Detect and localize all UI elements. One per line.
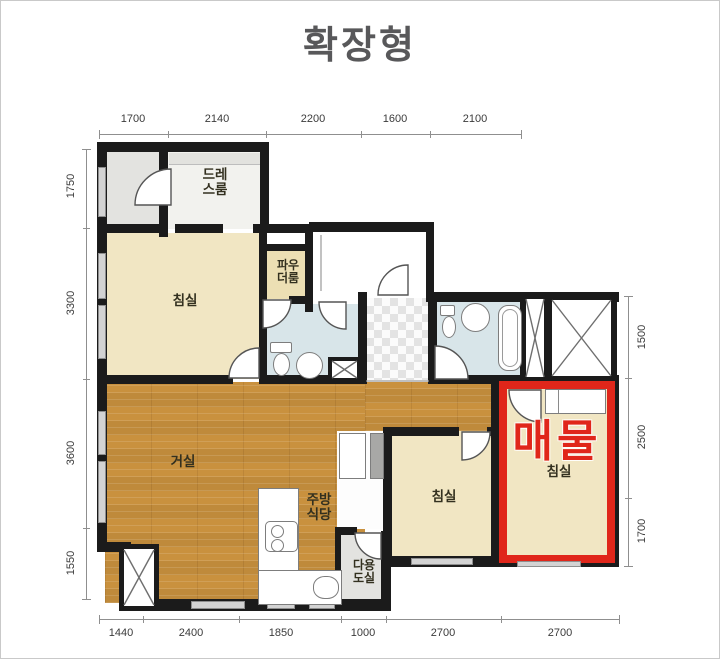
dress-room-label-line2: 스룸 <box>187 182 243 197</box>
dimension-label: 3600 <box>65 431 77 475</box>
wall <box>159 142 168 174</box>
window <box>98 305 106 359</box>
dimension-tick <box>99 130 100 139</box>
dimension-label: 1700 <box>108 113 158 125</box>
window <box>191 601 245 609</box>
kitchen-label-line1: 주방 <box>293 492 345 507</box>
toilet-cistern <box>270 342 292 353</box>
kitchen-label: 주방 식당 <box>293 492 345 522</box>
entry-room-floor <box>105 150 163 228</box>
refrigerator <box>339 433 366 479</box>
wall <box>383 427 392 561</box>
dining-floor <box>365 382 498 431</box>
toilet-bowl <box>273 353 290 376</box>
wall <box>383 427 459 436</box>
wall <box>97 375 233 384</box>
dimension-label: 1850 <box>256 627 306 639</box>
sink-basin <box>461 303 490 332</box>
dimension-tick <box>361 131 362 138</box>
wall <box>260 142 269 230</box>
stove-burner <box>271 525 284 538</box>
dimension-tick <box>83 228 90 229</box>
entrance-hall-floor <box>366 298 431 380</box>
dimension-tick <box>624 566 633 567</box>
dimension-tick <box>266 131 267 138</box>
wall <box>309 222 434 232</box>
bathtub <box>498 305 522 371</box>
powder-room-label-line2: 더룸 <box>263 272 313 285</box>
dimension-tick <box>624 296 633 297</box>
dimension-label: 2400 <box>166 627 216 639</box>
kitchen-label-line2: 식당 <box>293 507 345 522</box>
dimension-label: 1700 <box>636 509 648 553</box>
window <box>98 461 106 523</box>
dimension-tick <box>82 599 91 600</box>
dimension-label: 2200 <box>288 113 338 125</box>
window <box>411 558 473 565</box>
pantry-cabinet <box>370 433 384 479</box>
wall <box>97 142 269 152</box>
dimension-tick <box>82 149 91 150</box>
window <box>98 167 106 217</box>
wall <box>175 224 223 233</box>
toilet-bowl <box>442 316 456 338</box>
wall <box>289 296 313 304</box>
plan-title: 확장형 <box>1 14 719 69</box>
dimension-label: 3300 <box>65 281 77 325</box>
window <box>98 253 106 299</box>
dimension-tick <box>99 615 100 624</box>
dimension-tick <box>625 378 632 379</box>
floor-plan-canvas: 확장형 <box>0 0 720 659</box>
bedroom1-label: 침실 <box>157 293 213 308</box>
dimension-tick <box>168 131 169 138</box>
dimension-label: 2700 <box>535 627 585 639</box>
sink-basin <box>296 352 323 379</box>
bathtub-inner <box>502 309 518 367</box>
dimension-line-right <box>628 296 629 566</box>
dimension-tick <box>83 379 90 380</box>
utility-room-label-line2: 도실 <box>341 572 387 585</box>
wall <box>426 222 434 300</box>
dimension-label: 2100 <box>450 113 500 125</box>
dimension-tick <box>341 616 342 623</box>
window <box>517 561 581 567</box>
dimension-tick <box>239 616 240 623</box>
dimension-tick <box>619 615 620 624</box>
dress-room-label-line1: 드레 <box>187 167 243 182</box>
wall <box>97 224 163 233</box>
dimension-tick <box>83 528 90 529</box>
dimension-line-bottom <box>99 619 619 620</box>
dimension-label: 1550 <box>65 541 77 585</box>
bedroom2-label: 침실 <box>416 489 472 504</box>
toilet-cistern <box>440 305 455 316</box>
wall <box>428 292 437 384</box>
dimension-line-top <box>99 134 521 135</box>
dimension-label: 1500 <box>636 315 648 359</box>
dimension-label: 2140 <box>192 113 242 125</box>
wall <box>263 244 311 251</box>
dimension-label: 2700 <box>418 627 468 639</box>
living-room-label: 거실 <box>155 454 211 469</box>
dimension-tick <box>521 130 522 139</box>
column-x-box <box>119 544 159 611</box>
dimension-tick <box>625 498 632 499</box>
dimension-line-left <box>86 149 87 599</box>
closet-x-box <box>546 294 617 382</box>
dimension-label: 1000 <box>338 627 388 639</box>
dimension-label: 2500 <box>636 415 648 459</box>
dress-room-closet <box>169 153 261 165</box>
dimension-label: 1440 <box>96 627 146 639</box>
wall <box>119 599 389 611</box>
utility-room-label: 다용 도실 <box>341 559 387 586</box>
dimension-tick <box>430 131 431 138</box>
bath-shaft-x-box <box>328 357 361 382</box>
window <box>98 411 106 455</box>
vestibule-floor <box>313 233 428 294</box>
dimension-label: 1600 <box>370 113 420 125</box>
kitchen-sink <box>313 576 339 599</box>
dimension-tick <box>501 616 502 623</box>
sale-label: 매물 <box>499 405 615 469</box>
dimension-label: 1750 <box>65 164 77 208</box>
shaft-x-box <box>521 294 549 382</box>
dimension-tick <box>143 616 144 623</box>
stove-burner <box>271 539 284 552</box>
dimension-tick <box>386 616 387 623</box>
powder-room-label: 파우 더룸 <box>263 259 313 286</box>
dress-room-label: 드레 스룸 <box>187 167 243 197</box>
bedroom3-label: 침실 <box>531 464 587 479</box>
